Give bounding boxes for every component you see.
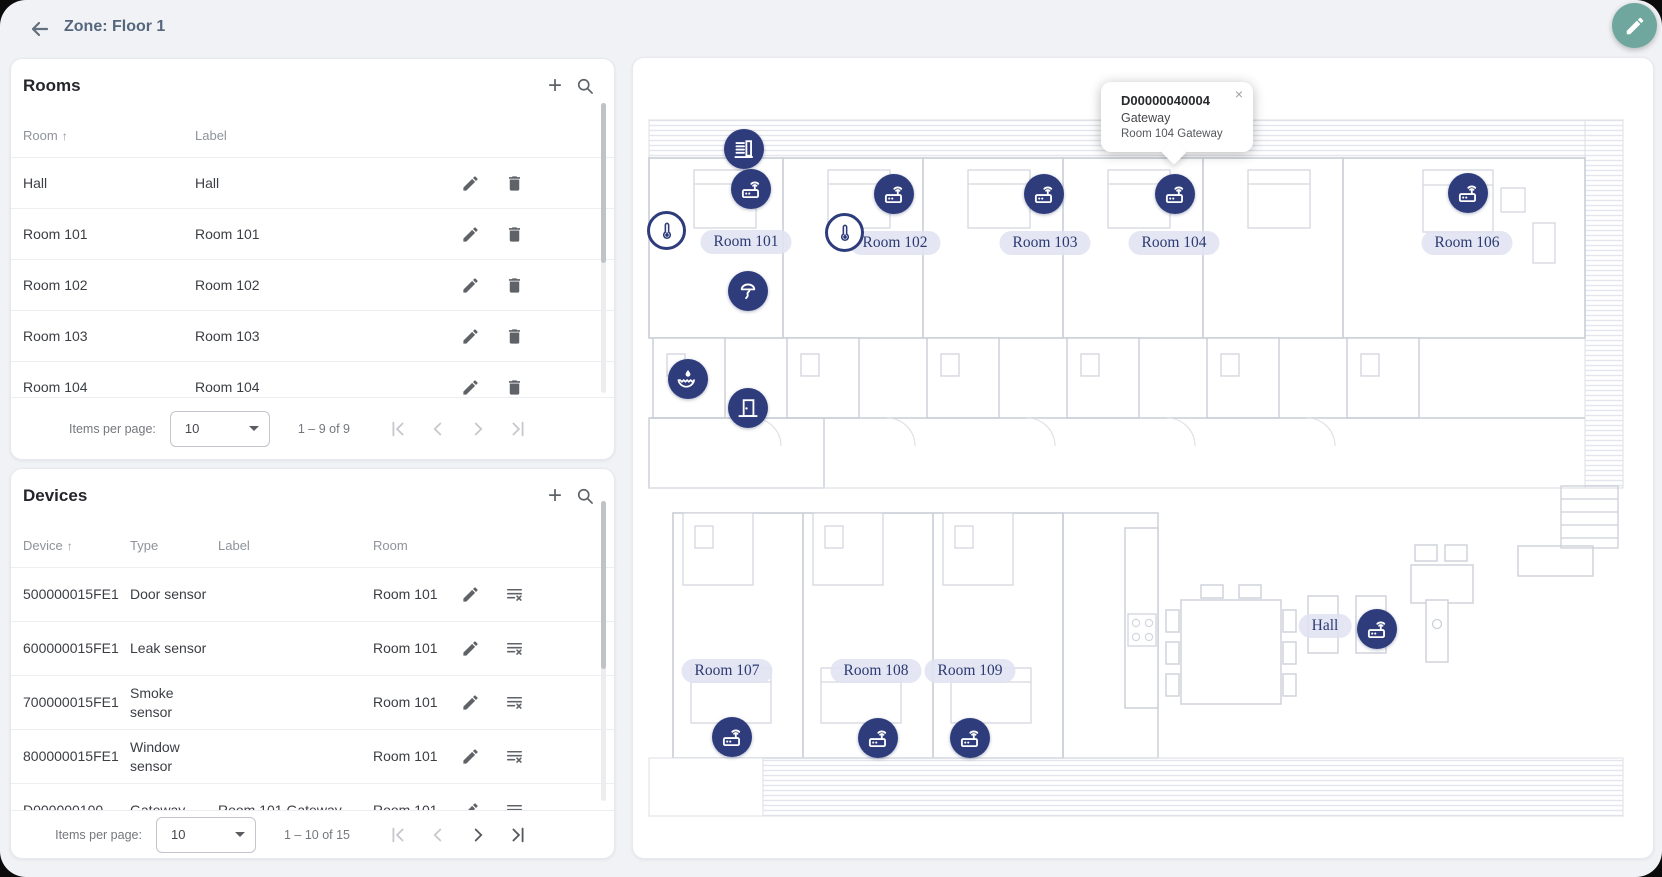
room-name: Hall [23,174,195,192]
first-page-button [378,409,418,449]
device-room: Room 101 [373,639,448,657]
plus-icon: + [548,74,562,98]
playlist-remove-icon [505,639,524,658]
device-marker-gateway-room103[interactable] [1024,174,1064,214]
tooltip-close-button[interactable]: × [1233,85,1245,103]
room-name: Room 103 [23,327,195,345]
device-tooltip: × D00000040004 Gateway Room 104 Gateway [1101,82,1253,152]
pencil-icon [461,327,480,346]
room-label: Room 101 [195,225,448,243]
pencil-icon [461,639,480,658]
rooms-paginator: Items per page: 10 1 – 9 of 9 [11,397,614,459]
device-id: 800000015FE1 [23,747,130,765]
gateway-icon [865,725,891,751]
edit-room-button[interactable] [452,165,488,201]
device-type: Door sensor [130,585,218,603]
plus-icon: + [548,484,562,508]
dropdown-caret-icon [249,426,259,431]
gateway-icon [719,724,745,750]
pencil-icon [1624,15,1646,37]
room-pill-107[interactable]: Room 107 [681,659,772,683]
previous-page-button [418,409,458,449]
device-marker-thermometer-room102[interactable] [825,213,864,252]
delete-room-button[interactable] [496,216,532,252]
devices-card-header: Devices + [11,469,614,523]
back-button[interactable] [26,15,54,43]
app-window: Zone: Floor 1 Rooms + Room↑ Label Hall H… [0,0,1662,877]
pencil-icon [461,747,480,766]
room-pill-103[interactable]: Room 103 [999,231,1090,255]
device-marker-leak-sensor[interactable] [668,359,708,399]
devices-paginator: Items per page: 10 1 – 10 of 15 [11,810,614,858]
device-row[interactable]: D000000100 Gateway Room 101 Gateway Room… [11,784,614,811]
edit-device-button[interactable] [452,793,488,812]
edit-room-button[interactable] [452,318,488,354]
unassign-device-button[interactable] [496,793,532,812]
unassign-device-button[interactable] [496,739,532,775]
first-page-button [378,815,418,855]
dropdown-caret-icon [235,832,245,837]
water-leak-icon [675,366,701,392]
rooms-range-label: 1 – 9 of 9 [298,422,350,436]
chevron-left-icon [427,824,449,846]
search-devices-button[interactable] [570,481,600,511]
device-marker-gateway-hall[interactable] [1357,609,1397,649]
chevron-right-icon [467,824,489,846]
device-marker-gateway-room101[interactable] [731,169,771,209]
room-row[interactable]: Room 101 Room 101 [11,209,614,260]
arrow-left-icon [28,17,52,41]
devices-title: Devices [23,486,540,506]
page-title: Zone: Floor 1 [64,18,165,36]
first-page-icon [387,418,409,440]
trash-icon [505,174,524,193]
app-header: Zone: Floor 1 [0,0,1662,57]
last-page-button[interactable] [498,815,538,855]
gateway-icon [738,176,764,202]
room-name: Room 102 [23,276,195,294]
add-device-button[interactable]: + [540,481,570,511]
last-page-icon [507,824,529,846]
room-label: Room 103 [195,327,448,345]
trash-icon [505,225,524,244]
room-pill-104[interactable]: Room 104 [1128,231,1219,255]
device-marker-thermometer-room101[interactable] [647,211,686,250]
device-row[interactable]: 600000015FE1 Leak sensor Room 101 [11,622,614,676]
first-page-icon [387,824,409,846]
device-room: Room 101 [373,747,448,765]
gateway-icon [1455,180,1481,206]
devices-col-room[interactable]: Room [373,538,448,553]
pencil-icon [461,585,480,604]
pencil-icon [461,693,480,712]
gateway-icon [1031,181,1057,207]
previous-page-button [418,815,458,855]
search-icon [575,486,595,506]
gateway-icon [957,725,983,751]
device-marker-gateway-room107[interactable] [712,717,752,757]
room-name: Room 104 [23,378,195,396]
devices-col-device[interactable]: Device↑ [23,538,130,553]
floorplan-card: Room 101 Room 102 Room 103 Room 104 Room… [632,57,1654,859]
rooms-card-header: Rooms + [11,59,614,113]
trash-icon [505,276,524,295]
gateway-icon [881,181,907,207]
pencil-icon [461,174,480,193]
device-id: 500000015FE1 [23,585,130,603]
edit-device-button[interactable] [452,631,488,667]
delete-room-button[interactable] [496,318,532,354]
window-blinds-icon [731,136,757,162]
devices-scrollbar-thumb[interactable] [601,501,606,669]
device-marker-gateway-room106[interactable] [1448,173,1488,213]
playlist-remove-icon [505,585,524,604]
floorplan-drawing[interactable] [633,58,1653,858]
room-label: Room 104 [195,378,448,396]
devices-table-body: 500000015FE1 Door sensor Room 101 600000… [11,568,614,811]
devices-range-label: 1 – 10 of 15 [284,828,350,842]
delete-room-button[interactable] [496,369,532,398]
edit-device-button[interactable] [452,739,488,775]
devices-col-label[interactable]: Label [218,538,373,553]
playlist-remove-icon [505,693,524,712]
add-room-button[interactable]: + [540,71,570,101]
last-page-icon [507,418,529,440]
rooms-col-room[interactable]: Room↑ [23,128,195,143]
room-pill-106[interactable]: Room 106 [1421,231,1512,255]
devices-card: Devices + Device↑ Type Label Room 500000… [10,468,615,859]
pencil-icon [461,225,480,244]
page-size-value: 10 [185,421,199,436]
device-room: Room 101 [373,693,448,711]
device-marker-gateway-room104[interactable] [1155,174,1195,214]
device-type: Leak sensor [130,639,218,657]
sort-asc-icon: ↑ [67,539,73,553]
devices-col-type[interactable]: Type [130,538,218,553]
room-row[interactable]: Room 102 Room 102 [11,260,614,311]
chevron-left-icon [427,418,449,440]
device-row[interactable]: 800000015FE1 Window sensor Room 101 [11,730,614,784]
search-rooms-button[interactable] [570,71,600,101]
rooms-table-body: Hall Hall Room 101 Room 101 Room 102 Roo… [11,158,614,398]
search-icon [575,76,595,96]
rooms-scrollbar-thumb[interactable] [601,103,606,263]
room-pill-108[interactable]: Room 108 [830,659,921,683]
next-page-button[interactable] [458,815,498,855]
sort-asc-icon: ↑ [62,129,68,143]
room-name: Room 101 [23,225,195,243]
device-id: 600000015FE1 [23,639,130,657]
edit-device-button[interactable] [452,685,488,721]
delete-room-button[interactable] [496,165,532,201]
device-row[interactable]: 700000015FE1 Smoke sensor Room 101 [11,676,614,730]
room-pill-109[interactable]: Room 109 [924,659,1015,683]
devices-page-size-select[interactable]: 10 [156,817,256,853]
items-per-page-label: Items per page: [55,828,142,842]
smoke-detector-icon [735,278,761,304]
rooms-page-size-select[interactable]: 10 [170,411,270,447]
thermometer-icon [834,222,856,244]
devices-table-header: Device↑ Type Label Room [11,523,614,568]
gateway-icon [1364,616,1390,642]
edit-room-button[interactable] [452,216,488,252]
tooltip-device-type: Gateway [1121,110,1241,127]
edit-device-button[interactable] [452,577,488,613]
device-id: 700000015FE1 [23,693,130,711]
device-room: Room 101 [373,585,448,603]
trash-icon [505,327,524,346]
unassign-device-button[interactable] [496,577,532,613]
device-marker-gateway-room108[interactable] [858,718,898,758]
tooltip-device-id: D00000040004 [1121,92,1241,110]
playlist-remove-icon [505,747,524,766]
room-row[interactable]: Room 104 Room 104 [11,362,614,398]
door-icon [735,395,761,421]
items-per-page-label: Items per page: [69,422,156,436]
room-label: Room 102 [195,276,448,294]
rooms-col-label[interactable]: Label [195,128,448,143]
chevron-right-icon [467,418,489,440]
last-page-button [498,409,538,449]
gateway-icon [1162,181,1188,207]
device-marker-window-sensor[interactable] [724,129,764,169]
room-pill-101[interactable]: Room 101 [700,230,791,254]
pencil-icon [461,378,480,397]
device-type: Smoke sensor [130,684,218,720]
unassign-device-button[interactable] [496,685,532,721]
page-size-value: 10 [171,827,185,842]
edit-room-button[interactable] [452,369,488,398]
device-row[interactable]: 500000015FE1 Door sensor Room 101 [11,568,614,622]
device-marker-gateway-room102[interactable] [874,174,914,214]
thermometer-icon [656,220,678,242]
unassign-device-button[interactable] [496,631,532,667]
edit-room-button[interactable] [452,267,488,303]
device-marker-door-sensor[interactable] [728,388,768,428]
tooltip-device-label: Room 104 Gateway [1121,126,1241,143]
rooms-card: Rooms + Room↑ Label Hall Hall Room 101 R… [10,58,615,460]
rooms-title: Rooms [23,76,540,96]
pencil-icon [461,276,480,295]
edit-zone-button[interactable] [1612,3,1657,48]
room-row[interactable]: Room 103 Room 103 [11,311,614,362]
rooms-table-header: Room↑ Label [11,113,614,158]
device-marker-smoke-sensor[interactable] [728,271,768,311]
device-marker-gateway-room109[interactable] [950,718,990,758]
trash-icon [505,378,524,397]
delete-room-button[interactable] [496,267,532,303]
room-row[interactable]: Hall Hall [11,158,614,209]
next-page-button [458,409,498,449]
device-type: Window sensor [130,738,218,774]
room-label: Hall [195,174,448,192]
room-pill-hall[interactable]: Hall [1299,614,1352,638]
